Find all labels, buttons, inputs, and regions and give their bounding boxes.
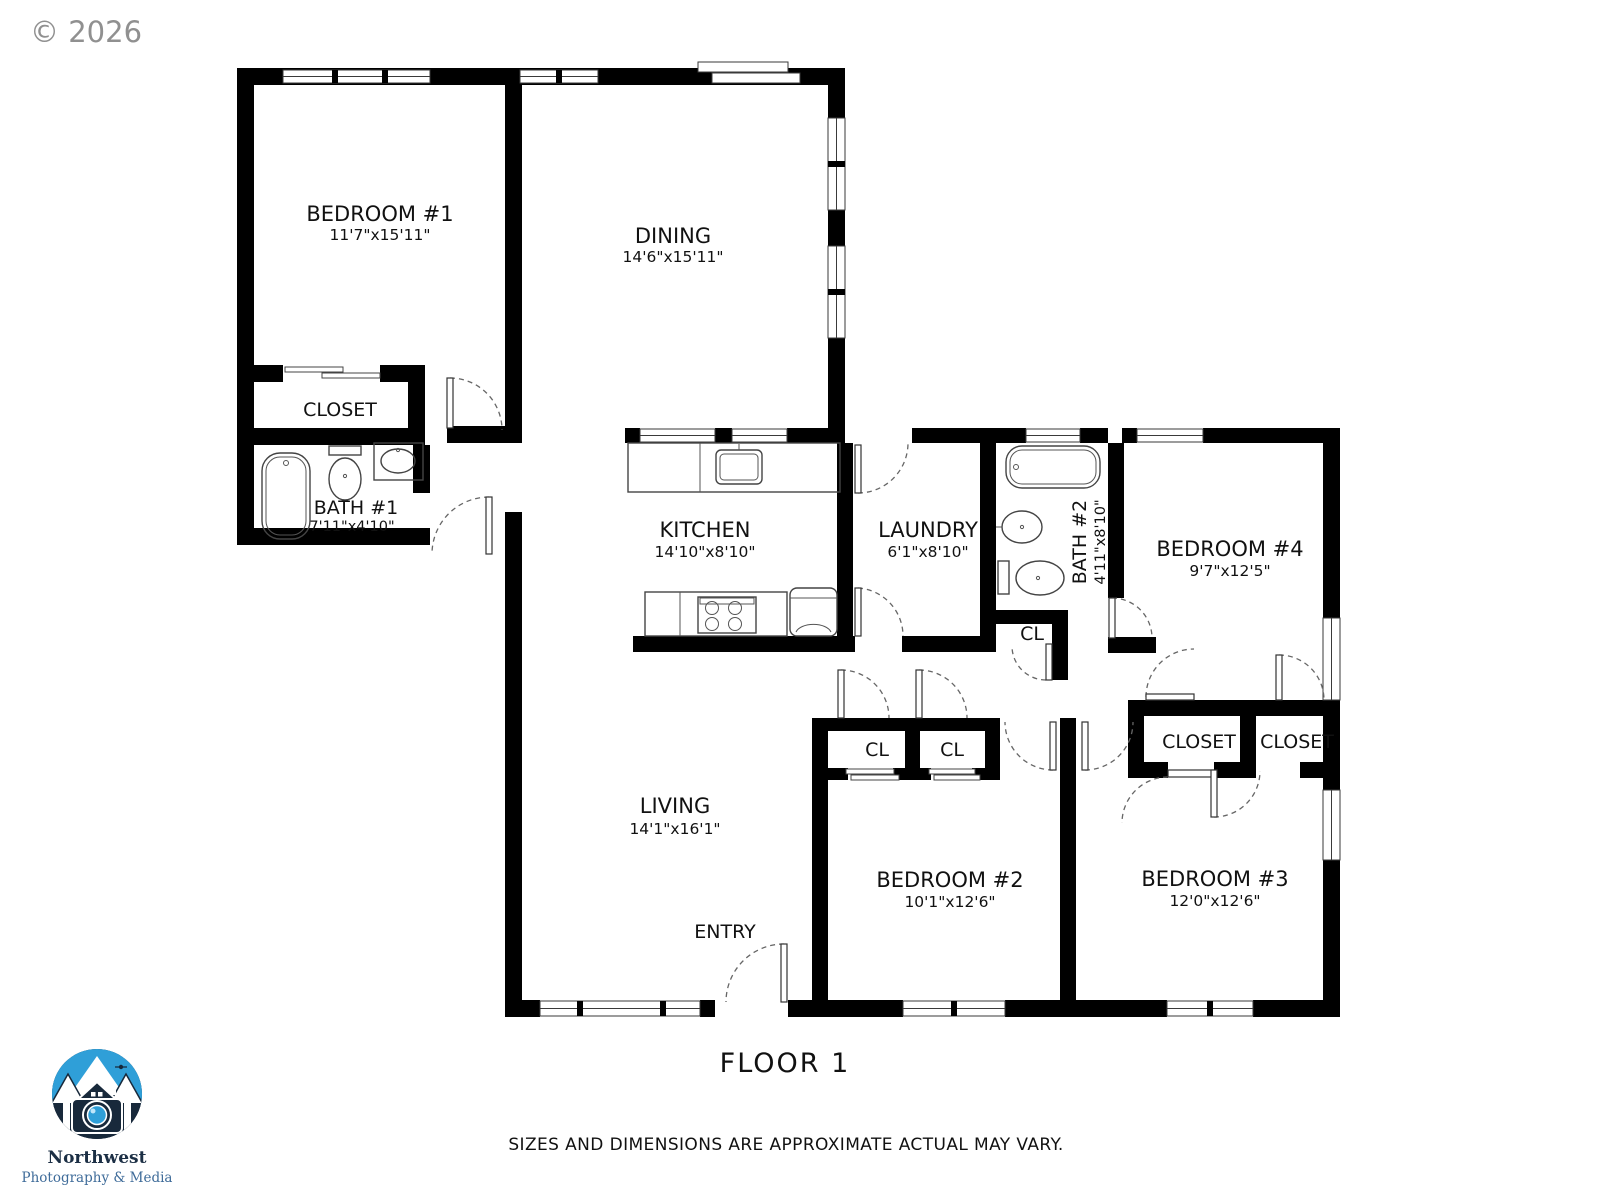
room-label-bedroom3: BEDROOM #3 [1141, 867, 1288, 891]
logo-chimney [110, 1086, 116, 1095]
room-dims-bedroom4: 9'7"x12'5" [1189, 562, 1270, 580]
room-label-bedroom1: BEDROOM #1 [306, 202, 453, 226]
disclaimer: SIZES AND DIMENSIONS ARE APPROXIMATE ACT… [508, 1135, 1063, 1155]
room-label-kitchen: KITCHEN [660, 518, 751, 542]
room-dims-bedroom3: 12'0"x12'6" [1169, 892, 1260, 910]
room-label-living: LIVING [640, 794, 710, 818]
room-dims-living: 14'1"x16'1" [629, 820, 720, 838]
copyright: © 2026 [30, 15, 142, 49]
room-label-laundry: LAUNDRY [878, 518, 978, 542]
room-label-closet1: CLOSET [303, 399, 377, 421]
room-dims-bedroom2: 10'1"x12'6" [904, 893, 995, 911]
room-label-bath1: BATH #1 [314, 497, 399, 519]
logo-title: Northwest [48, 1148, 147, 1168]
room-label-dining: DINING [635, 224, 711, 248]
room-dims-laundry: 6'1"x8'10" [887, 543, 968, 561]
room-label-closet-b3-left: CLOSET [1162, 731, 1236, 753]
room-dims-bath2: 4'11"x8'10" [1093, 499, 1109, 584]
room-label-cl-bath2: CL [1020, 623, 1044, 645]
room-dims-kitchen: 14'10"x8'10" [655, 543, 756, 561]
room-dims-bath1: 7'11"x4'10" [309, 519, 394, 535]
room-dims-dining: 14'6"x15'11" [623, 248, 724, 266]
floorplan-page: BEDROOM #1 11'7"x15'11" DINING 14'6"x15'… [0, 0, 1600, 1200]
logo: Northwest Photography & Media [22, 1049, 173, 1186]
room-label-bedroom2: BEDROOM #2 [876, 868, 1023, 892]
floor-title: FLOOR 1 [720, 1048, 851, 1079]
logo-lens [88, 1106, 107, 1125]
room-label-entry: ENTRY [694, 921, 756, 943]
logo-subtitle: Photography & Media [22, 1170, 173, 1186]
room-label-bath2: BATH #2 [1069, 500, 1091, 585]
room-label-bath2-group: BATH #2 4'11"x8'10" [1069, 499, 1109, 584]
logo-pillar-right [124, 1102, 131, 1132]
room-label-cl-right: CL [940, 739, 964, 761]
room-label-bedroom4: BEDROOM #4 [1156, 537, 1303, 561]
room-label-cl-left: CL [865, 739, 889, 761]
floorplan-svg: BEDROOM #1 11'7"x15'11" DINING 14'6"x15'… [0, 0, 1600, 1200]
room-dims-bedroom1: 11'7"x15'11" [330, 226, 431, 244]
room-label-closet-b3-right: CLOSET [1260, 731, 1334, 753]
logo-pillar-left [63, 1102, 70, 1132]
